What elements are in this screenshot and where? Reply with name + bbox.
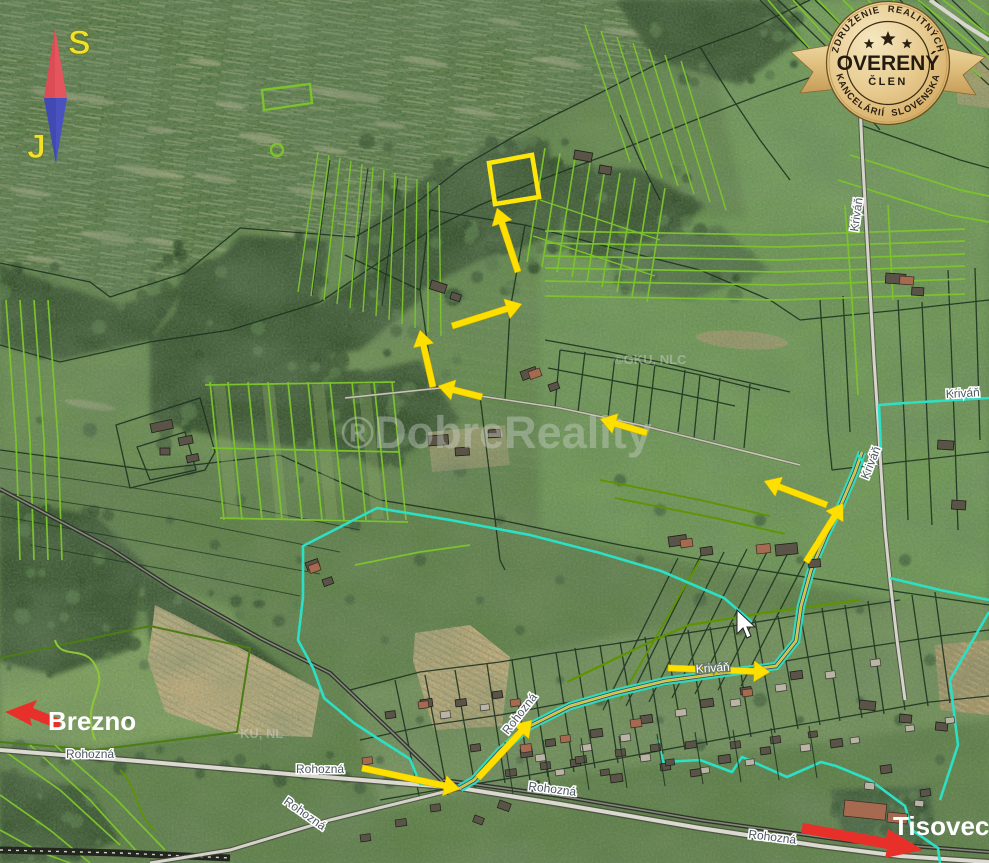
svg-text:S: S (68, 24, 91, 62)
svg-text:KU, NL: KU, NL (240, 726, 283, 741)
svg-text:Brezno: Brezno (48, 706, 136, 736)
svg-text:Tisovec: Tisovec (893, 811, 989, 841)
svg-text:Kriváň: Kriváň (695, 660, 730, 676)
svg-text:Rohozná: Rohozná (66, 747, 114, 761)
svg-text:OVERENÝ: OVERENÝ (837, 51, 940, 75)
svg-text:ČLEN: ČLEN (868, 75, 908, 88)
svg-text:Kriváň: Kriváň (945, 385, 980, 401)
svg-text:J: J (27, 128, 46, 166)
svg-text:®DobreReality: ®DobreReality (341, 407, 652, 458)
svg-text:©GKU, NLC: ©GKU, NLC (614, 352, 687, 367)
svg-text:Rohozná: Rohozná (296, 762, 344, 776)
